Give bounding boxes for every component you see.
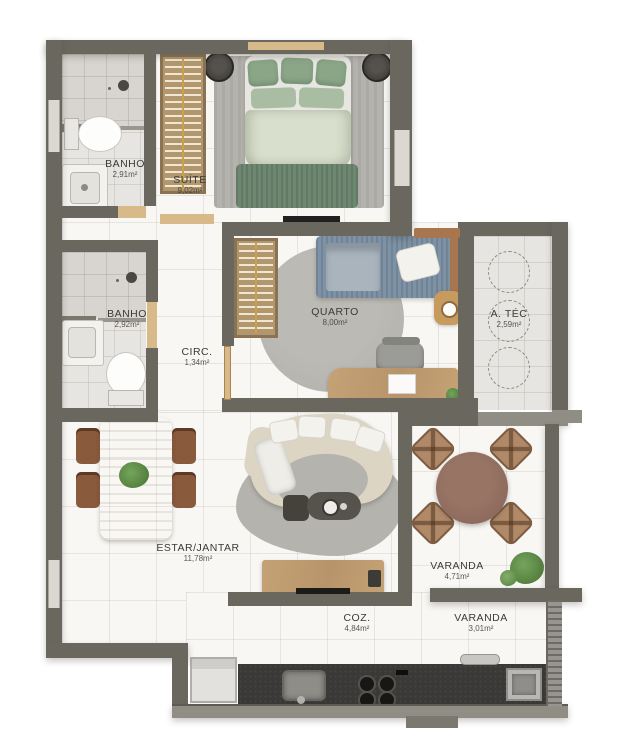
nightstand [204, 52, 234, 82]
bed-pillow [281, 57, 314, 84]
wall [46, 408, 158, 422]
stove-control [396, 670, 408, 675]
wall-step [406, 716, 458, 728]
shower-area [62, 54, 146, 126]
wall [172, 704, 568, 718]
faucet-icon [81, 184, 88, 191]
wall [228, 592, 412, 606]
wall [46, 206, 118, 218]
side-table-square [283, 495, 309, 521]
equipment-circle [488, 251, 530, 293]
window [48, 560, 60, 608]
equipment-circle [488, 347, 530, 389]
bed-pillow [299, 87, 345, 109]
wall [144, 54, 156, 206]
bed-blanket [236, 164, 358, 208]
wall [458, 222, 474, 412]
dining-chair [172, 472, 196, 508]
tv-screen [283, 216, 340, 222]
bed-duvet [245, 110, 351, 168]
room-label-circ: CIRC.1,34m² [168, 346, 226, 367]
wall [46, 40, 404, 54]
window [394, 130, 410, 186]
wall [46, 240, 156, 252]
shower-head-icon [118, 80, 129, 91]
quarto-bed-sheet [326, 243, 380, 291]
toilet-tank [64, 118, 79, 150]
wardrobe-hangers [160, 54, 206, 194]
room-label-atec: A. TÉC2,59m² [479, 308, 539, 329]
wall [545, 424, 559, 594]
dining-chair [76, 472, 100, 508]
wall [552, 410, 582, 423]
room-label-banho1: BANHO2,91m² [94, 158, 156, 179]
patio-table [436, 452, 508, 524]
room-label-quarto: QUARTO8,00m² [303, 306, 367, 327]
wall [552, 222, 568, 424]
nightstand [362, 52, 392, 82]
remote-icon [368, 570, 381, 587]
wall [398, 412, 412, 606]
wardrobe-hangers [234, 238, 278, 338]
wall [146, 240, 158, 302]
counter-faucet [460, 654, 500, 665]
tv-screen [296, 588, 350, 594]
wall [46, 643, 188, 658]
shower-head-icon [126, 272, 137, 283]
room-label-varanda2: VARANDA3,01m² [442, 612, 520, 633]
room-label-estar: ESTAR/JANTAR11,78m² [140, 542, 256, 563]
bed-pillow [315, 59, 347, 88]
room-label-banho2: BANHO2,92m² [96, 308, 158, 329]
room-label-varanda1: VARANDA4,71m² [424, 560, 490, 581]
window-sill [248, 42, 324, 50]
sofa-pillow [297, 415, 326, 438]
floor-plan: BANHO2,91m² SUÍTE9,02m² BANHO2,92m² CIRC… [0, 0, 640, 753]
dining-chair [172, 428, 196, 464]
sink-basin [68, 327, 96, 358]
window [48, 100, 60, 152]
wall [222, 236, 234, 346]
bed-pillow [251, 87, 297, 109]
kitchen-sink [282, 670, 326, 701]
coffee-cup-icon [340, 503, 347, 510]
desk-chair-back [382, 337, 420, 345]
room-label-coz: COZ.4,84m² [327, 612, 387, 633]
quarto-headboard [414, 228, 460, 238]
laundry-tank-basin [512, 674, 536, 695]
room-label-suite: SUÍTE9,02m² [158, 174, 222, 195]
door-threshold [118, 206, 146, 218]
fridge [190, 657, 237, 703]
toilet-tank [108, 390, 144, 406]
dining-chair [76, 428, 100, 464]
faucet-icon [297, 696, 305, 704]
wall [222, 222, 412, 236]
window-screen [546, 600, 562, 706]
wall [146, 348, 158, 412]
paper-sheet [388, 374, 416, 394]
toilet-bowl [78, 116, 122, 152]
coffee-cup-icon [322, 499, 339, 516]
door-threshold [160, 214, 214, 224]
wall [222, 398, 478, 412]
bed-pillow [247, 59, 279, 87]
bowl-icon [441, 301, 458, 318]
